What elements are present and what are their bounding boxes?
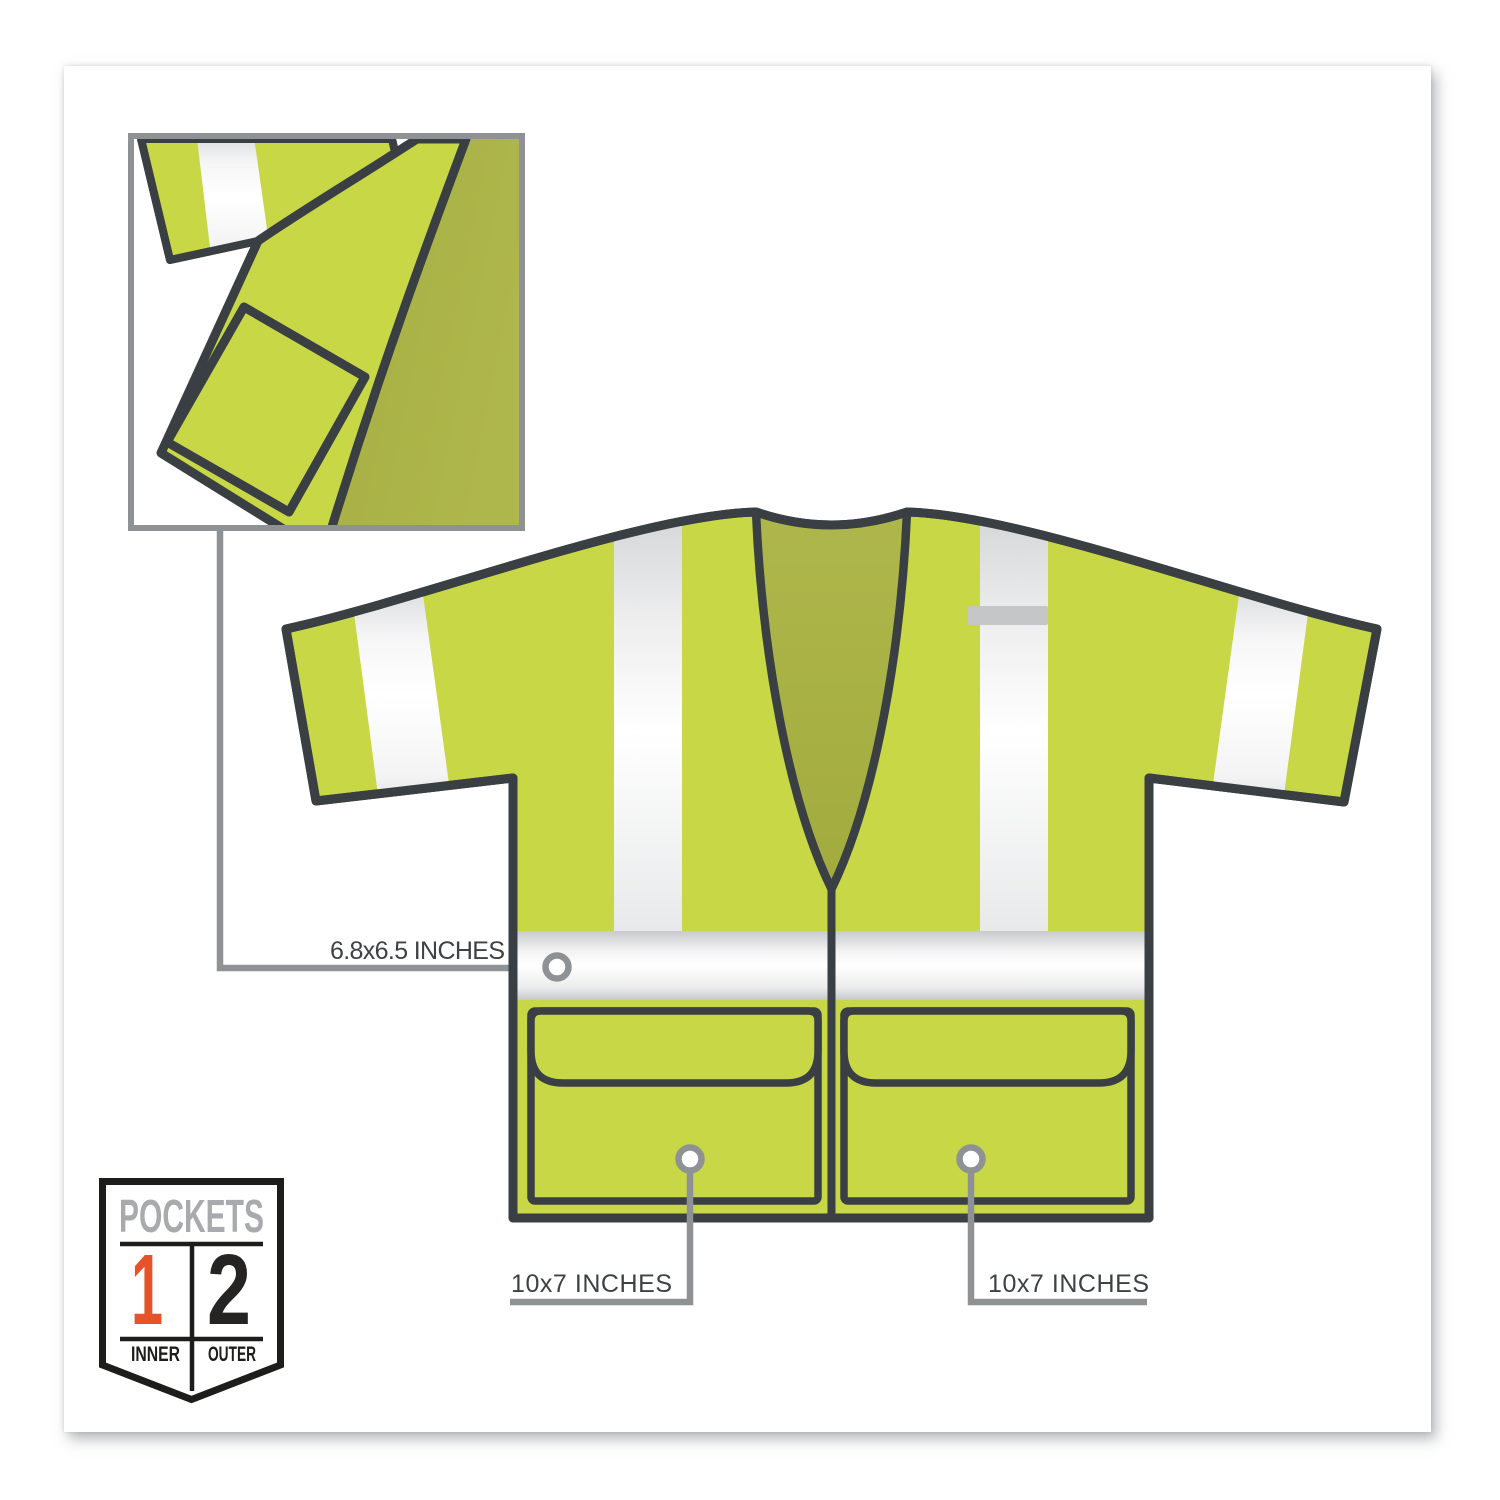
svg-text:1: 1 bbox=[131, 1234, 163, 1346]
svg-text:10x7 INCHES: 10x7 INCHES bbox=[988, 1270, 1149, 1298]
svg-text:10x7 INCHES: 10x7 INCHES bbox=[511, 1270, 672, 1298]
svg-text:OUTER: OUTER bbox=[208, 1342, 256, 1366]
svg-text:6.8x6.5 INCHES: 6.8x6.5 INCHES bbox=[330, 937, 505, 965]
svg-text:2: 2 bbox=[207, 1234, 251, 1346]
svg-text:INNER: INNER bbox=[131, 1342, 180, 1366]
